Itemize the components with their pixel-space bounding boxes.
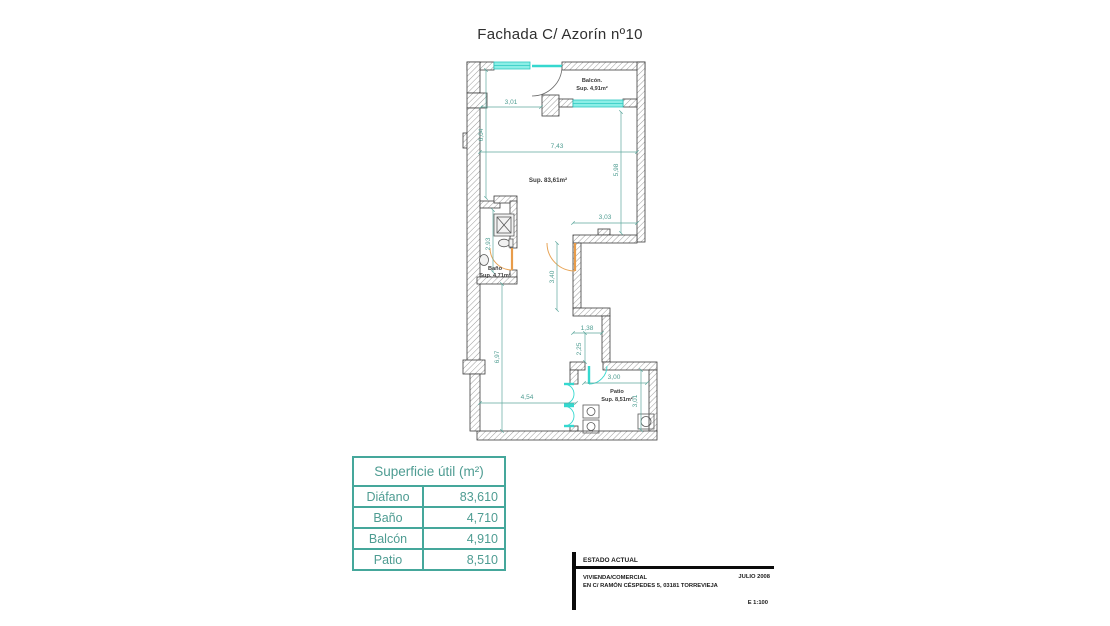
row-value: 8,510	[423, 549, 505, 570]
dimension-lines	[480, 70, 647, 431]
row-label: Baño	[353, 507, 423, 528]
row-label: Patio	[353, 549, 423, 570]
room-area-patio: Sup. 8,51m²	[601, 396, 633, 403]
dimension-label: 6,04	[478, 128, 485, 141]
title-block-line1: VIVIENDA/COMERCIAL	[583, 574, 718, 582]
drawing-sheet: Fachada C/ Azorín nº10	[0, 0, 1110, 626]
room-label-bano: Baño	[488, 266, 503, 272]
room-area-balcon: Sup. 4,91m²	[576, 85, 608, 92]
dimension-label: 3,03	[599, 214, 612, 221]
title-block-line2: EN C/ RAMÓN CÉSPEDES 5, 03181 TORREVIEJA	[583, 582, 718, 590]
dimension-label: 3,01	[505, 99, 518, 106]
table-row: Diáfano 83,610	[353, 486, 505, 507]
dimension-label: 5,98	[613, 163, 620, 176]
dimension-label: 2,93	[485, 237, 492, 250]
dimension-label: 3,40	[549, 270, 556, 283]
interior-door-swings	[490, 243, 575, 271]
row-label: Balcón	[353, 528, 423, 549]
row-value: 83,610	[423, 486, 505, 507]
dimension-label: 3,00	[608, 374, 621, 381]
dimension-label: 1,38	[581, 325, 594, 332]
room-area-diafano: Sup. 83,61m²	[529, 177, 567, 184]
title-block-date: JULIO 2008	[738, 574, 770, 590]
surface-table-header: Superficie útil (m²)	[353, 457, 505, 486]
table-row: Patio 8,510	[353, 549, 505, 570]
dimension-label: 3,01	[632, 394, 639, 407]
dimension-label: 4,54	[521, 394, 534, 401]
row-value: 4,710	[423, 507, 505, 528]
surface-table: Superficie útil (m²) Diáfano 83,610 Baño…	[352, 456, 506, 571]
floor-plan: 3,01 6,04 7,43 5,98 3,03 3,40 2,93 1,38 …	[430, 55, 700, 450]
room-area-bano: Sup. 4,71m²	[479, 272, 511, 279]
dimension-label: 7,43	[551, 143, 564, 150]
title-block: ESTADO ACTUAL VIVIENDA/COMERCIAL EN C/ R…	[572, 552, 774, 610]
patio-fixtures	[583, 405, 654, 433]
title-block-estado: ESTADO ACTUAL	[576, 552, 774, 566]
row-value: 4,910	[423, 528, 505, 549]
room-label-patio: Patio	[610, 389, 624, 395]
room-label-balcon: Balcón.	[582, 78, 603, 84]
dimension-label: 6,97	[494, 350, 501, 363]
title-block-scale: E 1:100	[748, 600, 768, 606]
table-row: Baño 4,710	[353, 507, 505, 528]
table-row: Balcón 4,910	[353, 528, 505, 549]
dimension-label: 2,25	[576, 342, 583, 355]
page-title: Fachada C/ Azorín nº10	[420, 26, 700, 43]
row-label: Diáfano	[353, 486, 423, 507]
